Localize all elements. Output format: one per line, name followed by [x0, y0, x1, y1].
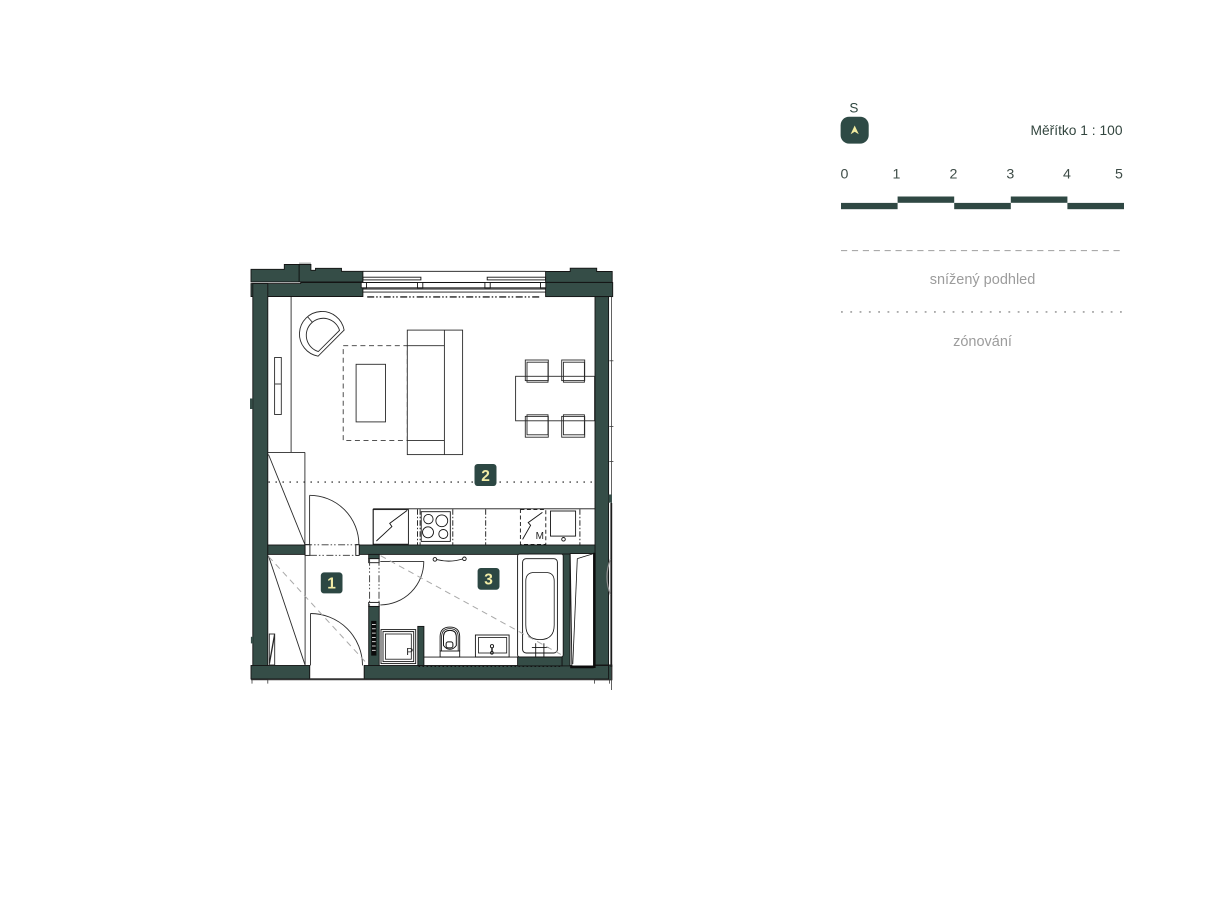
svg-text:1: 1 [893, 167, 901, 183]
svg-text:2: 2 [481, 468, 490, 485]
svg-text:S: S [849, 101, 858, 116]
svg-text:4: 4 [1063, 167, 1071, 183]
svg-text:P: P [406, 646, 413, 658]
svg-text:M: M [536, 531, 544, 542]
svg-text:0: 0 [841, 167, 849, 183]
svg-text:1: 1 [327, 576, 336, 593]
svg-text:Měřítko 1 : 100: Měřítko 1 : 100 [1030, 123, 1122, 138]
svg-text:zónování: zónování [953, 334, 1012, 350]
svg-text:3: 3 [1006, 167, 1014, 183]
svg-text:2: 2 [950, 167, 958, 183]
svg-text:snížený podhled: snížený podhled [930, 272, 1036, 288]
svg-text:5: 5 [1115, 167, 1123, 183]
svg-text:3: 3 [484, 572, 493, 589]
